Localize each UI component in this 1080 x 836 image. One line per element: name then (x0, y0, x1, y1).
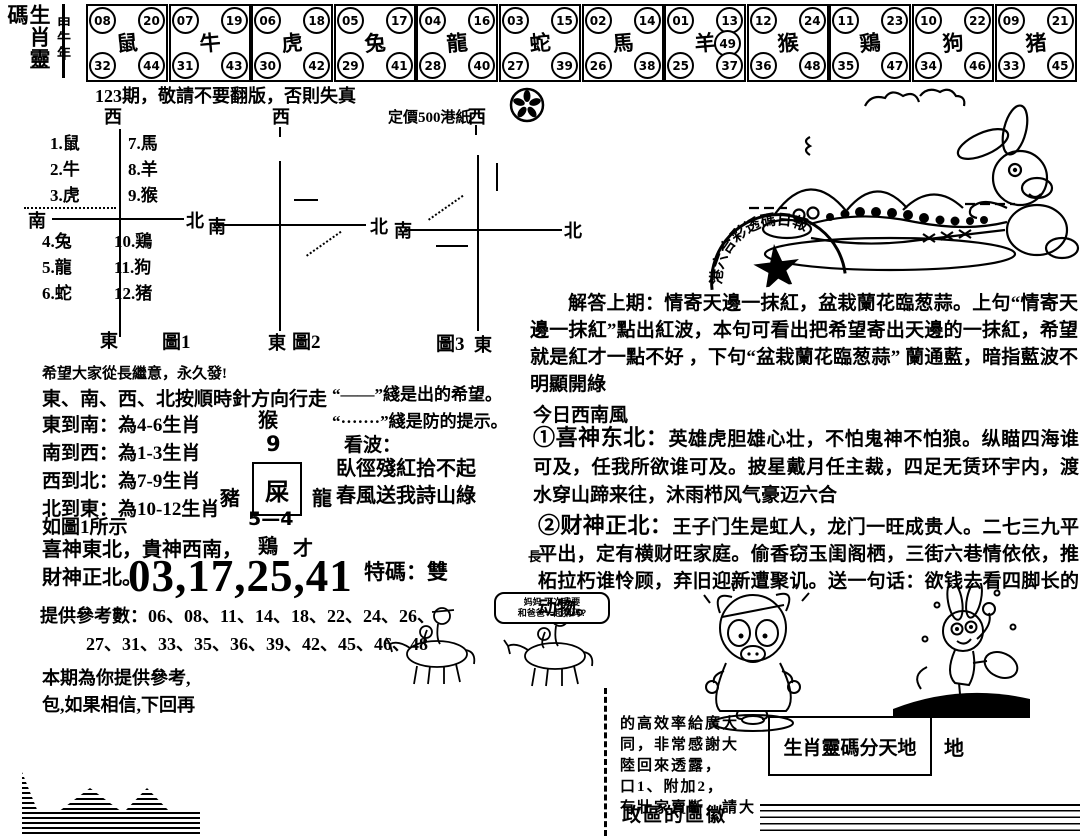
fig3-horizontal-line (406, 229, 562, 231)
zodiac-list-item: 12.猪 (114, 281, 152, 307)
mountain-scribble-spike (22, 772, 38, 812)
number-top-left: 05 (337, 7, 364, 34)
number-top-right: 16 (468, 7, 495, 34)
rooster-icon: 鶏 (859, 27, 883, 59)
zodiac-box-dog: 1022狗3446 (912, 4, 994, 82)
number-bottom-left: 33 (998, 52, 1025, 79)
compass-north-label: 北 (186, 207, 204, 233)
compass-figure-1: 西 1.鼠2.牛3.虎 7.馬8.羊9.猴 南 北 4.兔5.龍6.蛇 10.鶏… (18, 103, 218, 355)
fig1-list-se: 10.鶏11.狗12.猪 (114, 229, 152, 307)
last-issue-answer: 解答上期：情寄天邊一抹紅，盆栽蘭花臨葱蒜。上句“情寄天邊一抹紅”點出紅波，本句可… (530, 290, 1078, 398)
legend-dotted-line: “·······”綫是防的提示。 (332, 407, 508, 432)
zodiac-box-ox: 0719牛3143 (169, 4, 251, 82)
zodiac-box-rat: 0820鼠3244 (86, 4, 168, 82)
ruled-line-heavy (760, 804, 1080, 806)
truncated-text-line: 口1、附加2， (620, 777, 756, 798)
mountain-scribble-base (22, 812, 200, 836)
truncated-text-line: 的高效率給廣大 (620, 714, 756, 735)
mountain-scribble-hump (58, 788, 122, 812)
footer-note-line-2: 包,如果相信,下回再 (42, 691, 195, 717)
compass-west-label: 西 (104, 103, 122, 129)
zodiac-list-item: 4.兔 (42, 229, 72, 255)
lottery-stamp: 港六合彩透碼日報 (692, 177, 853, 295)
page-title: 生肖靈碼 (6, 4, 50, 78)
truncated-text-line: 陸回來透露， (620, 756, 756, 777)
zodiac-list-item: 10.鶏 (114, 229, 152, 255)
sweat-marks (704, 583, 809, 603)
center-pig: 豬 (220, 482, 240, 511)
zodiac-list-item: 1.鼠 (50, 131, 80, 157)
fig2-tick (279, 127, 281, 137)
number-top-left: 12 (750, 7, 777, 34)
number-bottom-right: 43 (221, 52, 248, 79)
fig3-vertical-line (477, 155, 479, 331)
number-top-left: 02 (585, 7, 612, 34)
feature-title: 生肖靈碼分天地 (783, 733, 916, 760)
route-line: 南到西：為1-3生肖 (42, 438, 200, 465)
zodiac-list-item: 3.虎 (50, 183, 80, 209)
number-top-right: 19 (221, 7, 248, 34)
ruled-lines (760, 810, 1080, 836)
number-bottom-right: 45 (1047, 52, 1074, 79)
number-bottom-right: 37 (716, 52, 743, 79)
pig-on-scale-cartoon (690, 583, 825, 733)
newspaper-page: 生肖靈碼 甲午年 0820鼠32440719牛31430618虎30420517… (0, 0, 1080, 836)
compass-east-label: 東 (100, 327, 118, 353)
feature-title-box: 生肖靈碼分天地 (768, 716, 932, 776)
reference-numbers-line-1: 提供參考數：06、08、11、14、18、22、24、26、 (40, 602, 435, 628)
number-top-right: 17 (386, 7, 413, 34)
center-number-9: 9 (266, 432, 281, 456)
number-top-right: 20 (138, 7, 165, 34)
rabbit-icon: 兔 (363, 27, 387, 59)
number-bottom-left: 35 (832, 52, 859, 79)
star-icon (751, 241, 802, 291)
hill (903, 194, 963, 210)
pig-icon: 猪 (1024, 27, 1048, 59)
zodiac-box-monkey: 1224猴3648 (747, 4, 829, 82)
footer-note-line-1: 本期為你提供參考, (42, 664, 191, 690)
zodiac-box-horse: 0214馬2638 (582, 4, 664, 82)
section-divider (604, 688, 607, 836)
number-top-right: 18 (303, 7, 330, 34)
emblem-caption: 政區的區徽 (622, 800, 727, 827)
fig1-horizontal-line (52, 218, 184, 220)
number-top-right: 21 (1047, 7, 1074, 34)
cloud-icon (920, 90, 964, 106)
fig1-list-ne: 7.馬8.羊9.猴 (128, 131, 158, 209)
zodiac-list-item: 9.猴 (128, 183, 158, 209)
goat-icon: 羊 (693, 27, 717, 59)
tiger-icon: 虎 (280, 27, 304, 59)
ox-icon: 牛 (198, 27, 222, 59)
special-code: 特碼：雙 (364, 556, 448, 586)
fig3-hope-dash-vertical (496, 163, 498, 191)
cloud-icon (865, 92, 919, 106)
zodiac-list-item: 11.狗 (114, 255, 152, 281)
kicking-rabbit-cartoon (885, 583, 1035, 718)
wave-poem-line-2: 春風送我詩山綠 (336, 479, 476, 508)
number-bottom-left: 26 (585, 52, 612, 79)
reference-numbers-line-2: 27、31、33、35、36、39、42、45、46、48 (86, 630, 428, 656)
number-bottom-left: 32 (89, 52, 116, 79)
monkey-icon: 猴 (776, 27, 800, 59)
item-1-paragraph: ①喜神东北：英雄虎胆雄心壮，不怕鬼神不怕狼。纵瞄四海谁可及，任我所欲谁可及。披星… (533, 424, 1079, 510)
truncated-text-line: 同，非常感謝大 (620, 735, 756, 756)
number-bottom-left: 27 (502, 52, 529, 79)
zodiac-box-rooster: 1123鶏3547 (829, 4, 911, 82)
number-top-left: 04 (419, 7, 446, 34)
dog-icon: 狗 (941, 27, 965, 59)
zodiac-box-pig: 0921猪3345 (995, 4, 1077, 82)
number-bottom-left: 34 (915, 52, 942, 79)
item-2-label: ②财神正北： (538, 513, 672, 538)
number-bottom-right: 40 (468, 52, 495, 79)
zodiac-list-item: 2.牛 (50, 157, 80, 183)
number-bottom-right: 39 (551, 52, 578, 79)
fig1-caption: 圖1 (162, 327, 191, 354)
wind-heading: 今日西南風 (533, 400, 628, 427)
compass-west-label: 西 (272, 103, 290, 129)
fig3-dotted-diagonal (428, 195, 464, 221)
fig2-dotted-diagonal (306, 231, 342, 257)
compass-east-label: 東 (474, 331, 492, 357)
zodiac-list-item: 8.羊 (128, 157, 158, 183)
year-label: 甲午年 (52, 4, 72, 78)
rat-icon: 鼠 (115, 27, 139, 59)
compass-west-label: 西 (468, 103, 486, 129)
zodiac-box-snake: 0315蛇2739 (499, 4, 581, 82)
number-bottom-right: 46 (964, 52, 991, 79)
compass-figure-2: 西 南 北 東 圖2 (208, 103, 398, 355)
fig2-hope-dash (294, 199, 318, 201)
number-top-left: 08 (89, 7, 116, 34)
number-top-left: 09 (998, 7, 1025, 34)
main-numbers: 03,17,25,41 (128, 550, 353, 602)
number-top-right: 23 (881, 7, 908, 34)
compass-north-label: 北 (370, 213, 388, 239)
zodiac-list-item: 5.龍 (42, 255, 72, 281)
item-1-label: ①喜神东北： (533, 425, 668, 450)
number-bottom-left: 30 (254, 52, 281, 79)
dragon-icon: 龍 (446, 27, 470, 59)
number-top-right: 22 (964, 7, 991, 34)
feature-side-char: 地 (944, 732, 964, 761)
fig3-caption: 圖3 (436, 329, 465, 356)
number-bottom-right: 41 (386, 52, 413, 79)
masthead: 生肖靈碼 甲午年 (6, 4, 65, 78)
zodiac-box-tiger: 0618虎3042 (251, 4, 333, 82)
fig3-hope-dash-horizontal (436, 245, 468, 247)
hope-note: 希望大家從長繼意，永久發! (42, 362, 227, 383)
number-top-left: 01 (667, 7, 694, 34)
route-line: 東到南：為4-6生肖 (42, 410, 200, 437)
number-bottom-right: 42 (303, 52, 330, 79)
number-top-left: 11 (832, 7, 859, 34)
center-dragon: 龍 (312, 482, 332, 511)
center-monkey: 猴 (258, 404, 278, 433)
squiggle (806, 137, 810, 155)
fig3-tick (475, 125, 477, 135)
compass-north-label: 北 (564, 217, 582, 243)
zodiac-box-dragon: 0416龍2840 (416, 4, 498, 82)
number-bottom-right: 44 (138, 52, 165, 79)
number-bottom-right: 48 (799, 52, 826, 79)
zodiac-box-goat: 011349羊2537 (664, 4, 746, 82)
zodiac-list-item: 7.馬 (128, 131, 158, 157)
fig2-vertical-line (279, 161, 281, 331)
zodiac-box-rabbit: 0517兔2941 (334, 4, 416, 82)
number-bottom-left: 31 (172, 52, 199, 79)
compass-south-label: 南 (208, 213, 226, 239)
compass-east-label: 東 (268, 329, 286, 355)
number-top-left: 07 (172, 7, 199, 34)
left-horse (386, 608, 474, 684)
number-bottom-left: 29 (337, 52, 364, 79)
number-top-left: 03 (502, 7, 529, 34)
number-bottom-left: 25 (667, 52, 694, 79)
legend-solid-line: “——”綫是出的希望。 (332, 380, 502, 405)
mountain-scribble-hump (124, 788, 170, 812)
gods-line-2: 財神正北。 (42, 561, 142, 590)
zodiac-list-item: 6.蛇 (42, 281, 72, 307)
fig2-caption: 圖2 (292, 327, 321, 354)
fig2-horizontal-line (216, 224, 366, 226)
number-top-left: 10 (915, 7, 942, 34)
fig1-list-sw: 4.兔5.龍6.蛇 (42, 229, 72, 307)
center-five-four: 5—4 (248, 508, 293, 530)
fig1-list-nw: 1.鼠2.牛3.虎 (50, 131, 80, 209)
number-top-right: 24 (799, 7, 826, 34)
route-line: 西到北：為7-9生肖 (42, 466, 200, 493)
number-top-right: 14 (634, 7, 661, 34)
snake-icon: 蛇 (528, 27, 552, 59)
horse-icon: 馬 (611, 27, 635, 59)
number-bottom-right: 38 (634, 52, 661, 79)
number-bottom-left: 36 (750, 52, 777, 79)
wave-poem-line-1: 臥徑殘紅拾不起 (336, 452, 476, 481)
number-top-right: 15 (551, 7, 578, 34)
number-bottom-left: 28 (419, 52, 446, 79)
number-bottom-right: 47 (881, 52, 908, 79)
walk-note: 東、南、西、北按順時針方向行走 (42, 384, 327, 411)
number-top-left: 06 (254, 7, 281, 34)
